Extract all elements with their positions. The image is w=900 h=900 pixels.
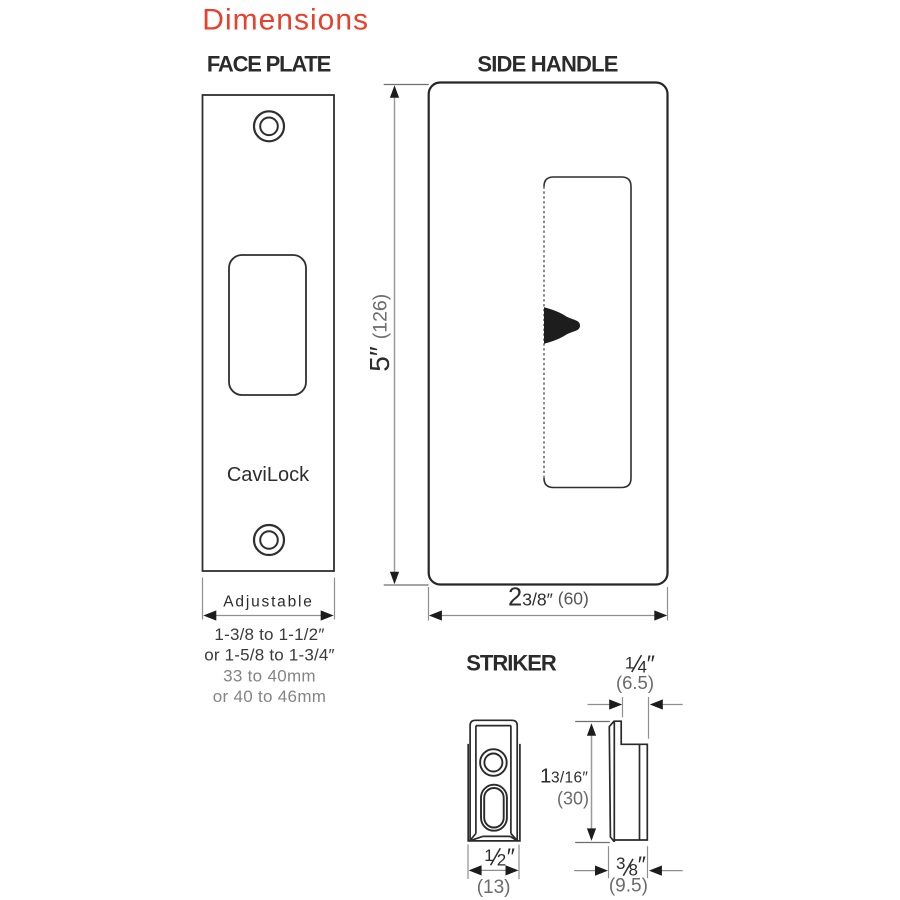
svg-text:or 1-5/8 to 1-3/4″: or 1-5/8 to 1-3/4″ <box>204 645 335 664</box>
svg-text:23/8″ (60): 23/8″ (60) <box>508 584 589 612</box>
svg-text:1: 1 <box>540 765 551 788</box>
svg-text:STRIKER: STRIKER <box>466 651 557 676</box>
svg-text:″: ″ <box>638 851 646 877</box>
svg-text:″: ″ <box>507 843 515 869</box>
svg-text:FACE PLATE: FACE PLATE <box>207 52 331 77</box>
svg-text:(13): (13) <box>477 877 511 898</box>
svg-text:(126): (126) <box>370 294 392 340</box>
svg-text:3: 3 <box>616 854 625 873</box>
svg-text:SIDE HANDLE: SIDE HANDLE <box>477 52 617 77</box>
svg-text:1-3/8 to 1-1/2″: 1-3/8 to 1-1/2″ <box>214 625 324 644</box>
svg-text:33 to 40mm: 33 to 40mm <box>223 667 316 686</box>
svg-text:(30): (30) <box>557 789 589 809</box>
svg-text:(6.5): (6.5) <box>616 672 654 693</box>
svg-text:CaviLock: CaviLock <box>227 464 310 486</box>
svg-text:5″: 5″ <box>364 346 395 372</box>
svg-text:2: 2 <box>497 851 506 870</box>
svg-text:(9.5): (9.5) <box>609 876 648 897</box>
svg-text:Adjustable: Adjustable <box>223 594 313 611</box>
svg-text:3/16″: 3/16″ <box>551 770 588 787</box>
svg-text:or 40 to 46mm: or 40 to 46mm <box>213 687 327 706</box>
svg-text:Dimensions: Dimensions <box>202 4 369 37</box>
